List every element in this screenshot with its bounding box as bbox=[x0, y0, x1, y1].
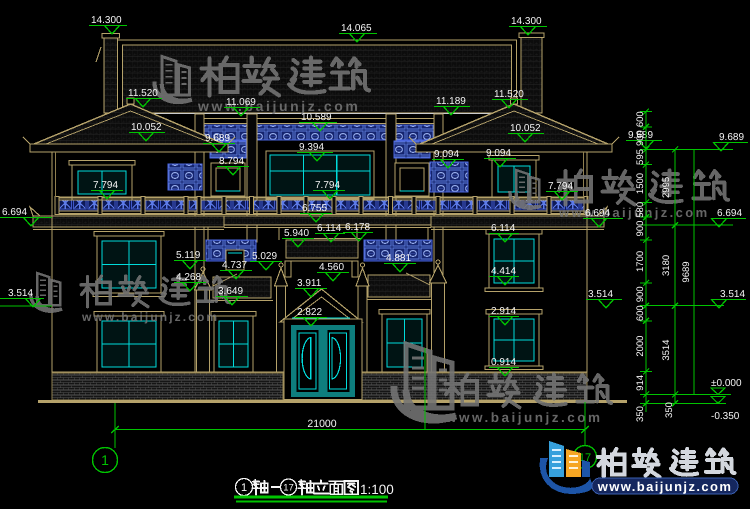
svg-text:11.069: 11.069 bbox=[226, 97, 256, 108]
svg-text:14.300: 14.300 bbox=[91, 15, 122, 26]
svg-text:±0.000: ±0.000 bbox=[711, 378, 742, 389]
svg-text:2.822: 2.822 bbox=[297, 307, 322, 318]
svg-text:580: 580 bbox=[635, 202, 646, 218]
svg-text:1: 1 bbox=[101, 452, 109, 468]
svg-text:7.794: 7.794 bbox=[93, 180, 118, 191]
svg-text:5.940: 5.940 bbox=[284, 228, 309, 239]
svg-text:1500: 1500 bbox=[635, 173, 646, 194]
svg-text:2995: 2995 bbox=[661, 177, 672, 198]
svg-text:4.560: 4.560 bbox=[319, 262, 344, 273]
svg-text:2000: 2000 bbox=[635, 336, 646, 357]
svg-text:900: 900 bbox=[635, 286, 646, 302]
svg-text:900: 900 bbox=[635, 130, 646, 146]
svg-text:3514: 3514 bbox=[661, 340, 672, 361]
svg-text:8.794: 8.794 bbox=[219, 156, 244, 167]
svg-text:6.114: 6.114 bbox=[491, 223, 516, 234]
svg-text:www.baijunjz.com: www.baijunjz.com bbox=[81, 310, 219, 324]
svg-text:4.268: 4.268 bbox=[176, 272, 201, 283]
svg-text:3180: 3180 bbox=[661, 255, 672, 276]
svg-text:4.414: 4.414 bbox=[491, 266, 516, 277]
svg-text:6.694: 6.694 bbox=[2, 207, 27, 218]
svg-text:3.911: 3.911 bbox=[297, 278, 322, 289]
svg-text:7.794: 7.794 bbox=[315, 180, 340, 191]
svg-text:3.514: 3.514 bbox=[8, 288, 33, 299]
svg-text:11.520: 11.520 bbox=[128, 88, 158, 99]
svg-text:600: 600 bbox=[635, 111, 646, 127]
svg-text:11.189: 11.189 bbox=[436, 96, 466, 107]
svg-text:14.300: 14.300 bbox=[511, 16, 542, 27]
svg-text:4.737: 4.737 bbox=[222, 260, 247, 271]
svg-text:6.694: 6.694 bbox=[585, 208, 610, 219]
svg-text:350: 350 bbox=[664, 402, 675, 418]
svg-text:9.394: 9.394 bbox=[299, 142, 324, 153]
svg-text:6.114: 6.114 bbox=[317, 223, 342, 234]
svg-text:4.881: 4.881 bbox=[386, 253, 411, 264]
svg-text:17: 17 bbox=[283, 483, 294, 494]
svg-text:1:100: 1:100 bbox=[360, 482, 394, 497]
svg-text:1700: 1700 bbox=[635, 251, 646, 272]
svg-text:www.baijunjz.com: www.baijunjz.com bbox=[197, 98, 360, 114]
svg-text:9.689: 9.689 bbox=[719, 132, 744, 143]
svg-text:6.178: 6.178 bbox=[345, 222, 370, 233]
svg-text:350: 350 bbox=[635, 406, 646, 422]
svg-text:3.514: 3.514 bbox=[588, 289, 613, 300]
svg-text:11.520: 11.520 bbox=[494, 89, 524, 100]
svg-text:10.052: 10.052 bbox=[510, 123, 541, 134]
svg-text:9.094: 9.094 bbox=[486, 148, 511, 159]
svg-text:5.119: 5.119 bbox=[176, 250, 201, 261]
svg-text:-0.350: -0.350 bbox=[711, 411, 740, 422]
svg-text:7.794: 7.794 bbox=[548, 181, 573, 192]
svg-text:9.689: 9.689 bbox=[205, 133, 230, 144]
svg-text:3.514: 3.514 bbox=[720, 289, 745, 300]
svg-text:10.589: 10.589 bbox=[301, 112, 332, 123]
svg-text:9.094: 9.094 bbox=[434, 149, 459, 160]
svg-text:900: 900 bbox=[635, 221, 646, 237]
svg-text:10.052: 10.052 bbox=[131, 122, 162, 133]
svg-text:914: 914 bbox=[635, 375, 646, 391]
svg-text:600: 600 bbox=[635, 305, 646, 321]
svg-text:21000: 21000 bbox=[307, 418, 336, 430]
svg-text:0.914: 0.914 bbox=[491, 357, 516, 368]
svg-text:2.914: 2.914 bbox=[491, 306, 516, 317]
svg-text:14.065: 14.065 bbox=[341, 23, 372, 34]
svg-text:9689: 9689 bbox=[681, 261, 692, 282]
svg-text:www.baijunjz.com: www.baijunjz.com bbox=[558, 205, 710, 220]
svg-text:5.029: 5.029 bbox=[252, 251, 277, 262]
svg-text:www.baijunjz.com: www.baijunjz.com bbox=[597, 479, 733, 494]
svg-text:595: 595 bbox=[635, 149, 646, 165]
svg-text:3.649: 3.649 bbox=[218, 286, 243, 297]
svg-text:1: 1 bbox=[241, 482, 247, 494]
svg-text:6.755: 6.755 bbox=[302, 203, 327, 214]
svg-text:www.baijunjz.com: www.baijunjz.com bbox=[445, 410, 603, 425]
svg-text:6.694: 6.694 bbox=[717, 208, 742, 219]
